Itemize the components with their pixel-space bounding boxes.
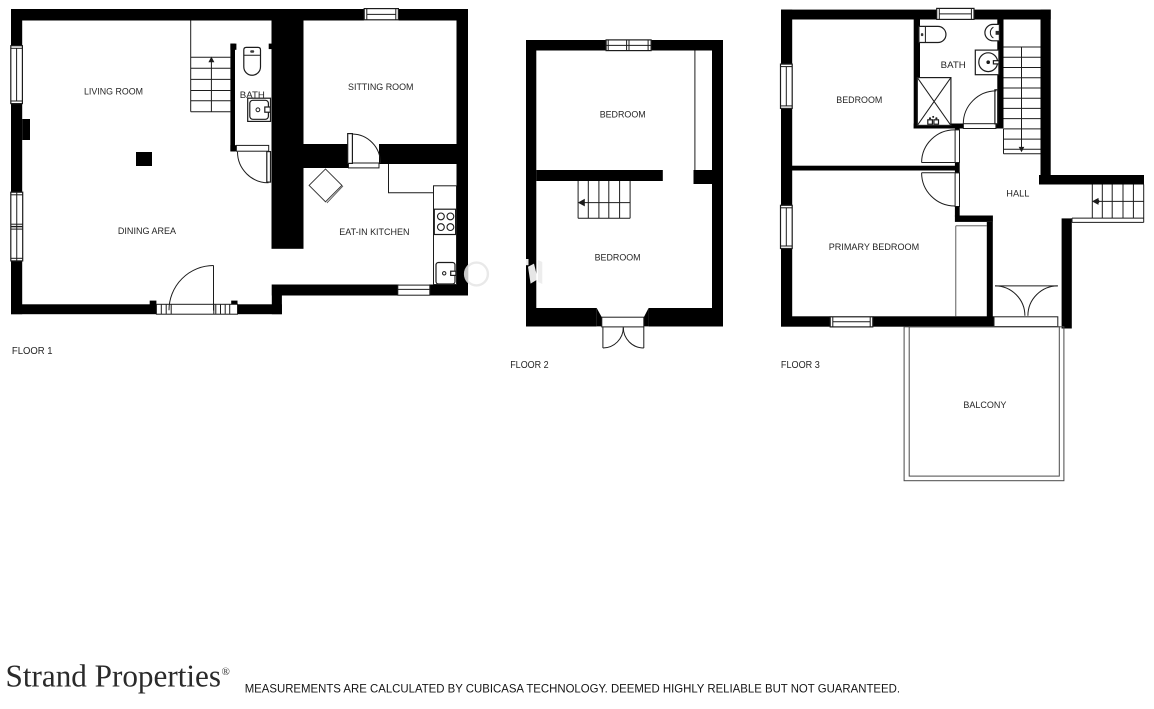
svg-text:FLOOR 3: FLOOR 3 [781, 360, 820, 371]
svg-text:BATH: BATH [941, 60, 966, 70]
svg-text:FLOOR 2: FLOOR 2 [510, 360, 549, 371]
svg-text:Strand Properties: Strand Properties [6, 659, 222, 694]
svg-text:PRIMARY BEDROOM: PRIMARY BEDROOM [829, 242, 920, 252]
svg-text:SITTING ROOM: SITTING ROOM [348, 82, 414, 92]
svg-text:BATH: BATH [240, 90, 265, 100]
svg-text:®: ® [222, 666, 230, 678]
svg-text:BEDROOM: BEDROOM [595, 253, 641, 263]
svg-text:BEDROOM: BEDROOM [836, 95, 882, 105]
svg-text:EAT-IN KITCHEN: EAT-IN KITCHEN [339, 227, 409, 237]
svg-text:LIVING ROOM: LIVING ROOM [84, 86, 143, 96]
svg-text:DINING AREA: DINING AREA [118, 226, 177, 236]
svg-text:BALCONY: BALCONY [963, 400, 1006, 410]
svg-text:MEASUREMENTS ARE CALCULATED BY: MEASUREMENTS ARE CALCULATED BY CUBICASA … [245, 682, 900, 696]
svg-text:FLOOR 1: FLOOR 1 [12, 346, 53, 357]
svg-text:HALL: HALL [1006, 189, 1029, 199]
svg-text:BEDROOM: BEDROOM [600, 110, 646, 120]
